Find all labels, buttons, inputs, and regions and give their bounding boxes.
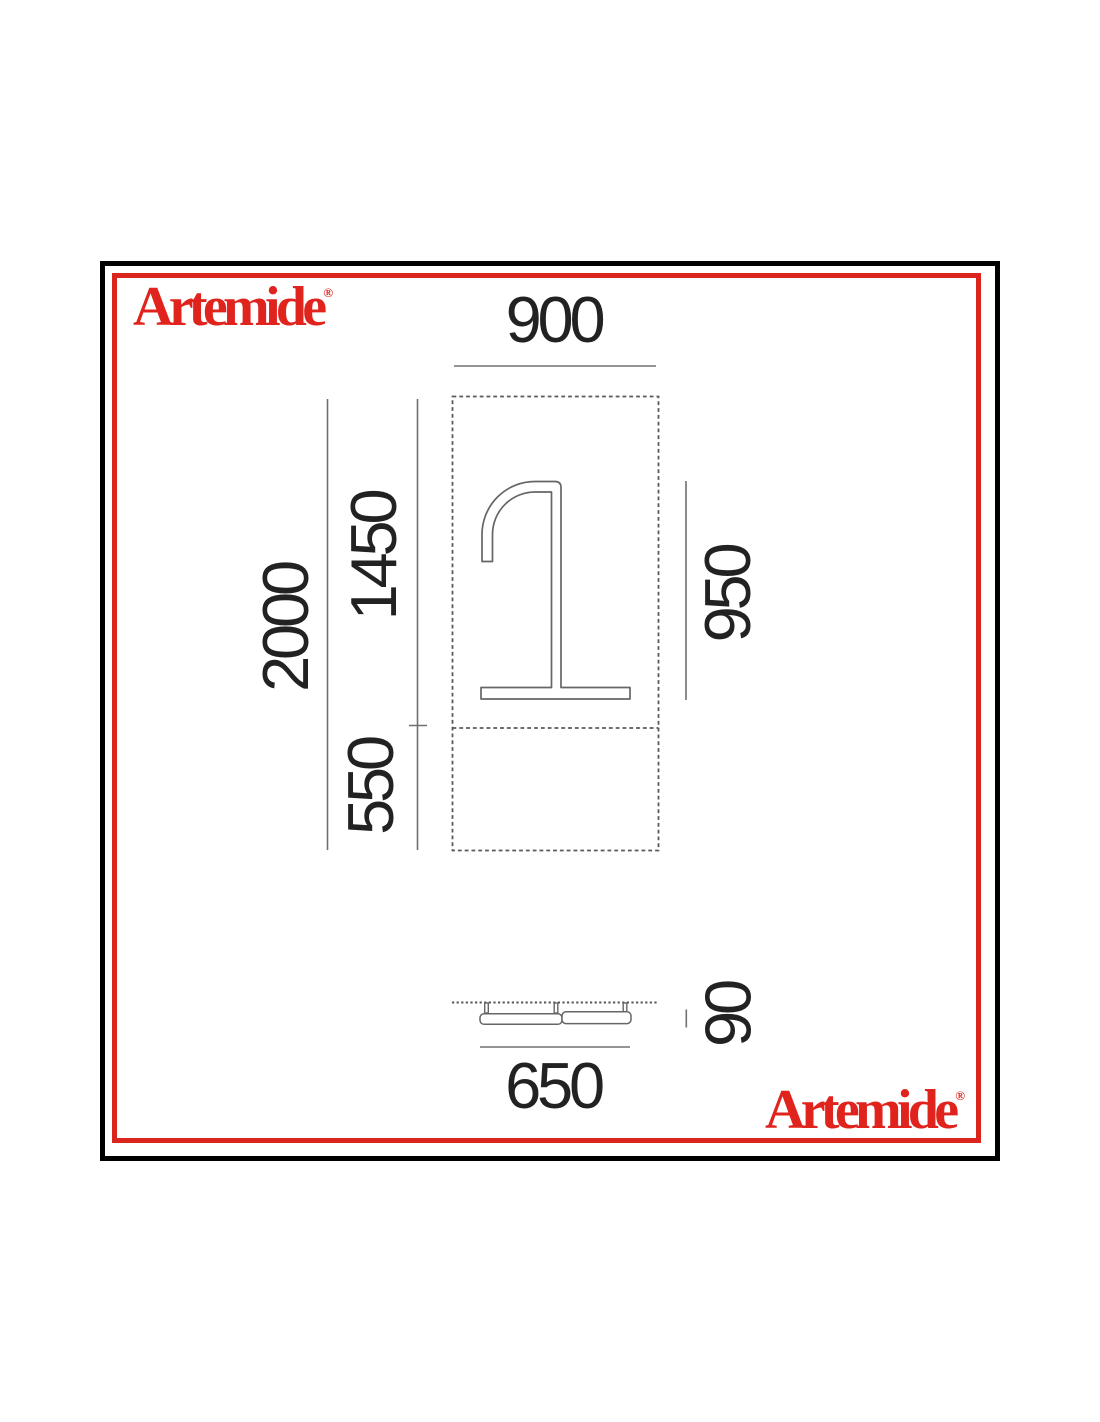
svg-text:2000: 2000 [249, 562, 322, 692]
svg-text:90: 90 [692, 981, 765, 1047]
svg-text:550: 550 [334, 737, 407, 835]
svg-text:1450: 1450 [337, 491, 410, 621]
svg-text:900: 900 [506, 283, 604, 356]
svg-text:950: 950 [691, 545, 764, 643]
svg-text:650: 650 [505, 1049, 603, 1122]
